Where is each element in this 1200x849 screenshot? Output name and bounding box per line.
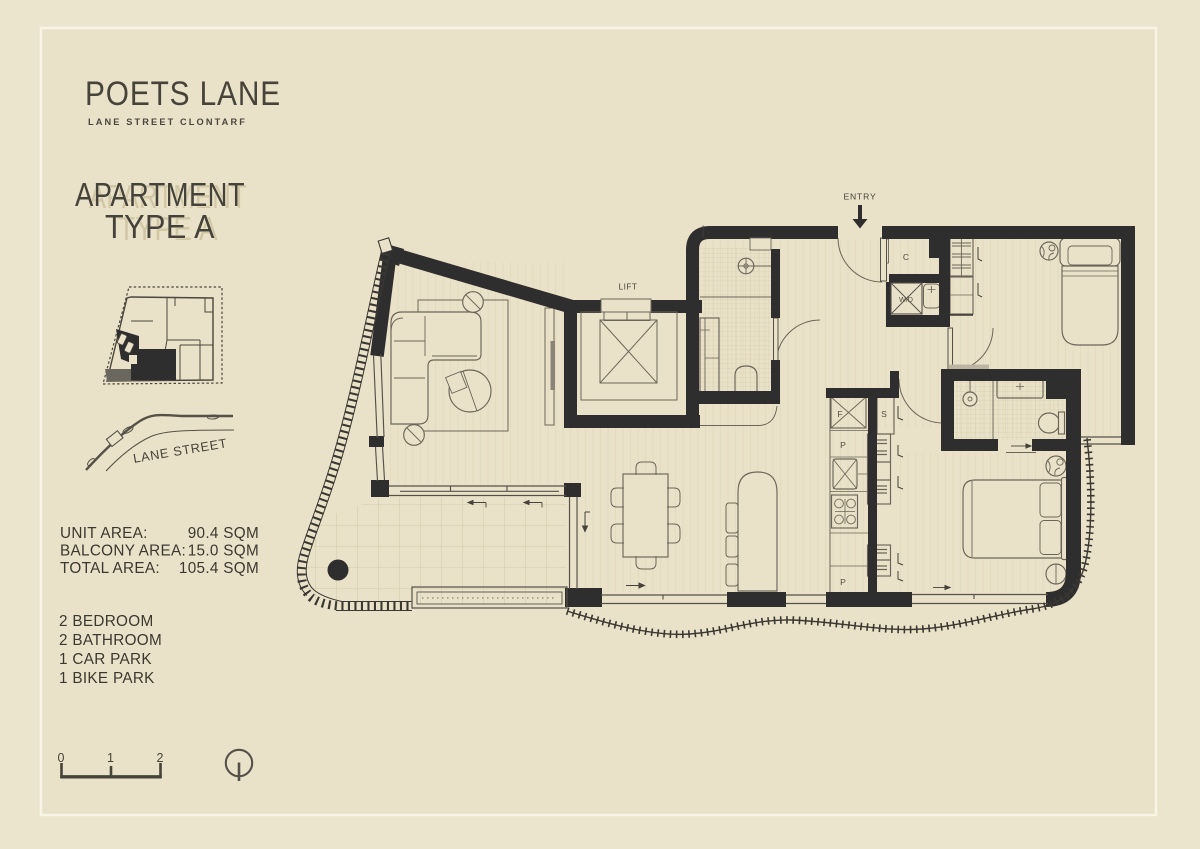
svg-text:2: 2 <box>157 751 164 765</box>
svg-text:1: 1 <box>107 751 114 765</box>
svg-text:105.4 SQM: 105.4 SQM <box>179 560 259 577</box>
svg-text:POETS LANE: POETS LANE <box>85 75 281 113</box>
svg-text:UNIT AREA:: UNIT AREA: <box>60 525 148 542</box>
svg-text:1 BIKE PARK: 1 BIKE PARK <box>59 670 155 687</box>
svg-text:1 CAR PARK: 1 CAR PARK <box>59 651 152 668</box>
svg-text:BALCONY AREA:: BALCONY AREA: <box>60 543 186 560</box>
svg-text:2 BATHROOM: 2 BATHROOM <box>59 632 162 649</box>
svg-text:C: C <box>903 252 909 262</box>
svg-text:LANE STREET CLONTARF: LANE STREET CLONTARF <box>88 117 247 128</box>
svg-text:TYPE A: TYPE A <box>105 208 215 245</box>
svg-text:TOTAL AREA:: TOTAL AREA: <box>60 560 160 577</box>
svg-text:ENTRY: ENTRY <box>844 192 877 202</box>
svg-text:F: F <box>837 409 842 419</box>
svg-text:P: P <box>840 577 846 587</box>
svg-text:15.0 SQM: 15.0 SQM <box>188 543 259 560</box>
svg-text:S: S <box>881 409 887 419</box>
svg-text:2 BEDROOM: 2 BEDROOM <box>59 613 154 630</box>
svg-text:90.4 SQM: 90.4 SQM <box>188 525 259 542</box>
svg-text:P: P <box>840 440 846 450</box>
svg-text:0: 0 <box>58 751 65 765</box>
svg-text:W/D: W/D <box>899 295 913 304</box>
svg-text:LIFT: LIFT <box>619 283 638 292</box>
